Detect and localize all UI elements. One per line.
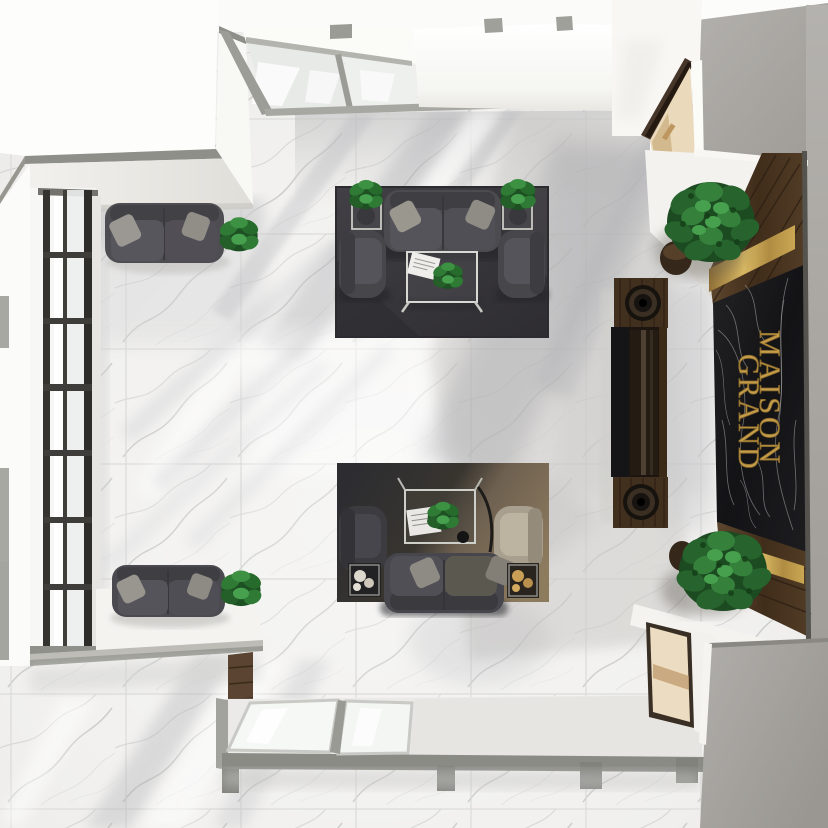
- svg-text:GRAND: GRAND: [732, 354, 765, 471]
